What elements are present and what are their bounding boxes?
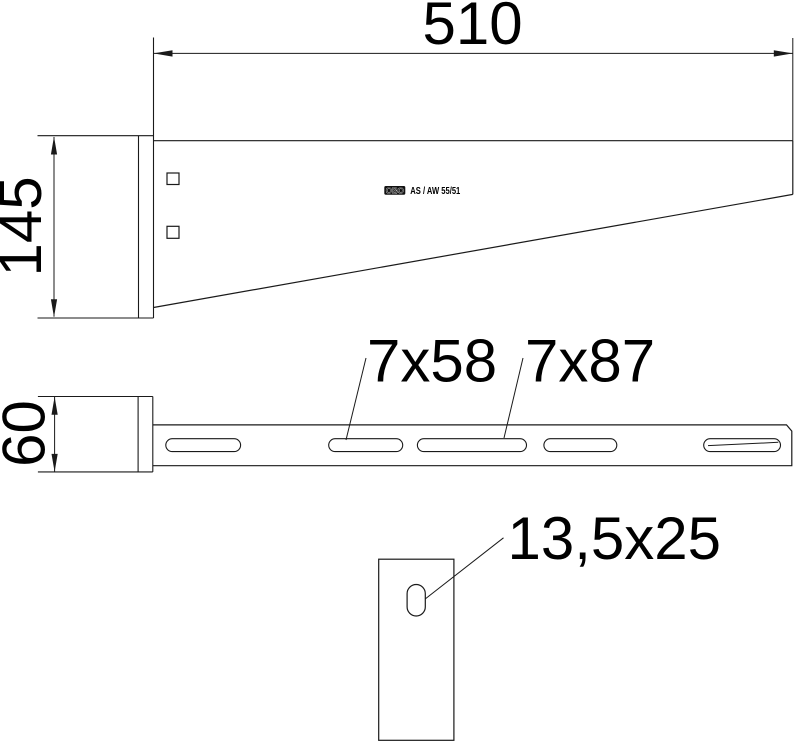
svg-text:13,5x25: 13,5x25	[508, 505, 722, 572]
svg-text:7x87: 7x87	[525, 327, 655, 394]
svg-text:510: 510	[423, 0, 523, 57]
svg-text:60: 60	[0, 400, 57, 467]
svg-text:7x58: 7x58	[367, 327, 497, 394]
svg-text:OBO: OBO	[386, 185, 404, 195]
svg-text:145: 145	[0, 176, 54, 276]
svg-text:AS / AW 55/51: AS / AW 55/51	[410, 186, 460, 197]
